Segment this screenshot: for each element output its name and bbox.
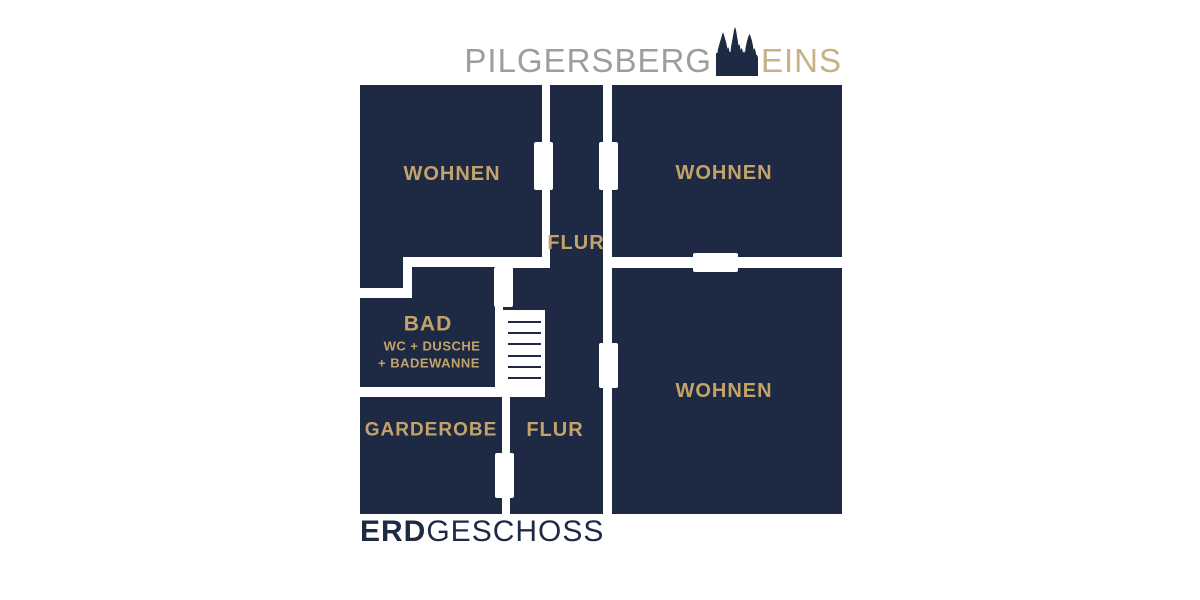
label-flur-top: FLUR [547,233,604,253]
stair-tread [508,366,541,368]
label-garderobe: GARDEROBE [365,421,498,440]
floor-title-light: GESCHOSS [426,515,604,548]
label-wohnen-top-left: WOHNEN [403,164,500,184]
page: PILGERSBERG EINS [0,0,1200,600]
label-bad: BAD [404,314,453,335]
brand-name: PILGERSBERG [464,44,712,77]
label-bad-sub2: + BADEWANNE [378,357,480,370]
stair-tread [508,343,541,345]
room-garderobe [360,397,502,514]
label-flur-bottom: FLUR [526,420,583,440]
label-bad-sub1: WC + DUSCHE [384,340,481,353]
brand-logo: PILGERSBERG EINS [464,26,842,77]
stair-tread [508,355,541,357]
floor-title: ERDGESCHOSS [360,517,604,547]
floor-plan: WOHNEN WOHNEN WOHNEN FLUR FLUR BAD WC + … [360,85,842,514]
label-wohnen-bottom-right: WOHNEN [675,381,772,401]
floor-title-bold: ERD [360,515,426,548]
label-wohnen-top-right: WOHNEN [675,163,772,183]
brand-accent: EINS [761,44,842,77]
hall-connector [545,387,603,397]
stair-tread [508,321,541,323]
cathedral-icon [714,26,760,76]
room-wohnen-top-left-notch [360,257,403,288]
stair-tread [508,377,541,379]
door-wohnen-top-left [534,142,553,190]
door-wohnen-bottom-right [599,343,618,388]
room-flur-bottom [510,397,603,514]
staircase-icon [503,310,545,390]
door-between-right-rooms [693,253,738,272]
door-wohnen-top-right [599,142,618,190]
door-garderobe-flur [495,453,514,498]
door-bad [494,267,513,307]
stair-tread [508,332,541,334]
